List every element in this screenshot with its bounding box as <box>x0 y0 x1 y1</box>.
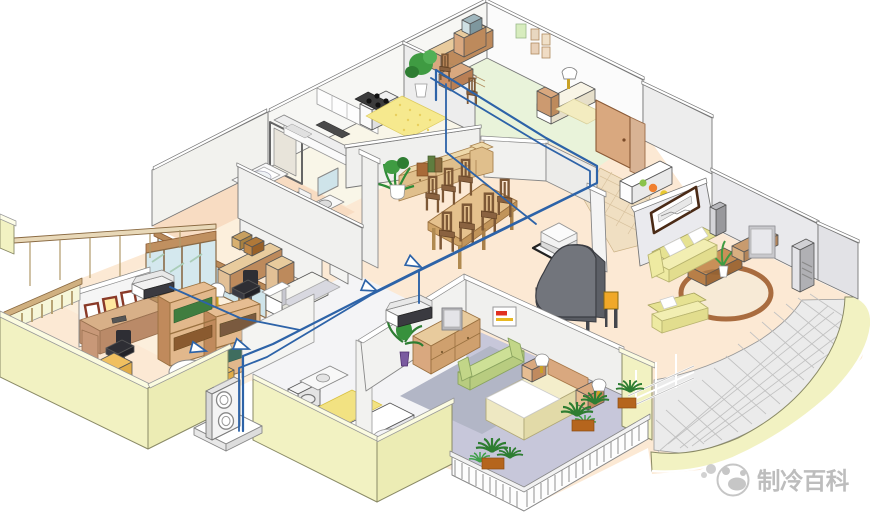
svg-text:制冷百科: 制冷百科 <box>757 467 850 494</box>
